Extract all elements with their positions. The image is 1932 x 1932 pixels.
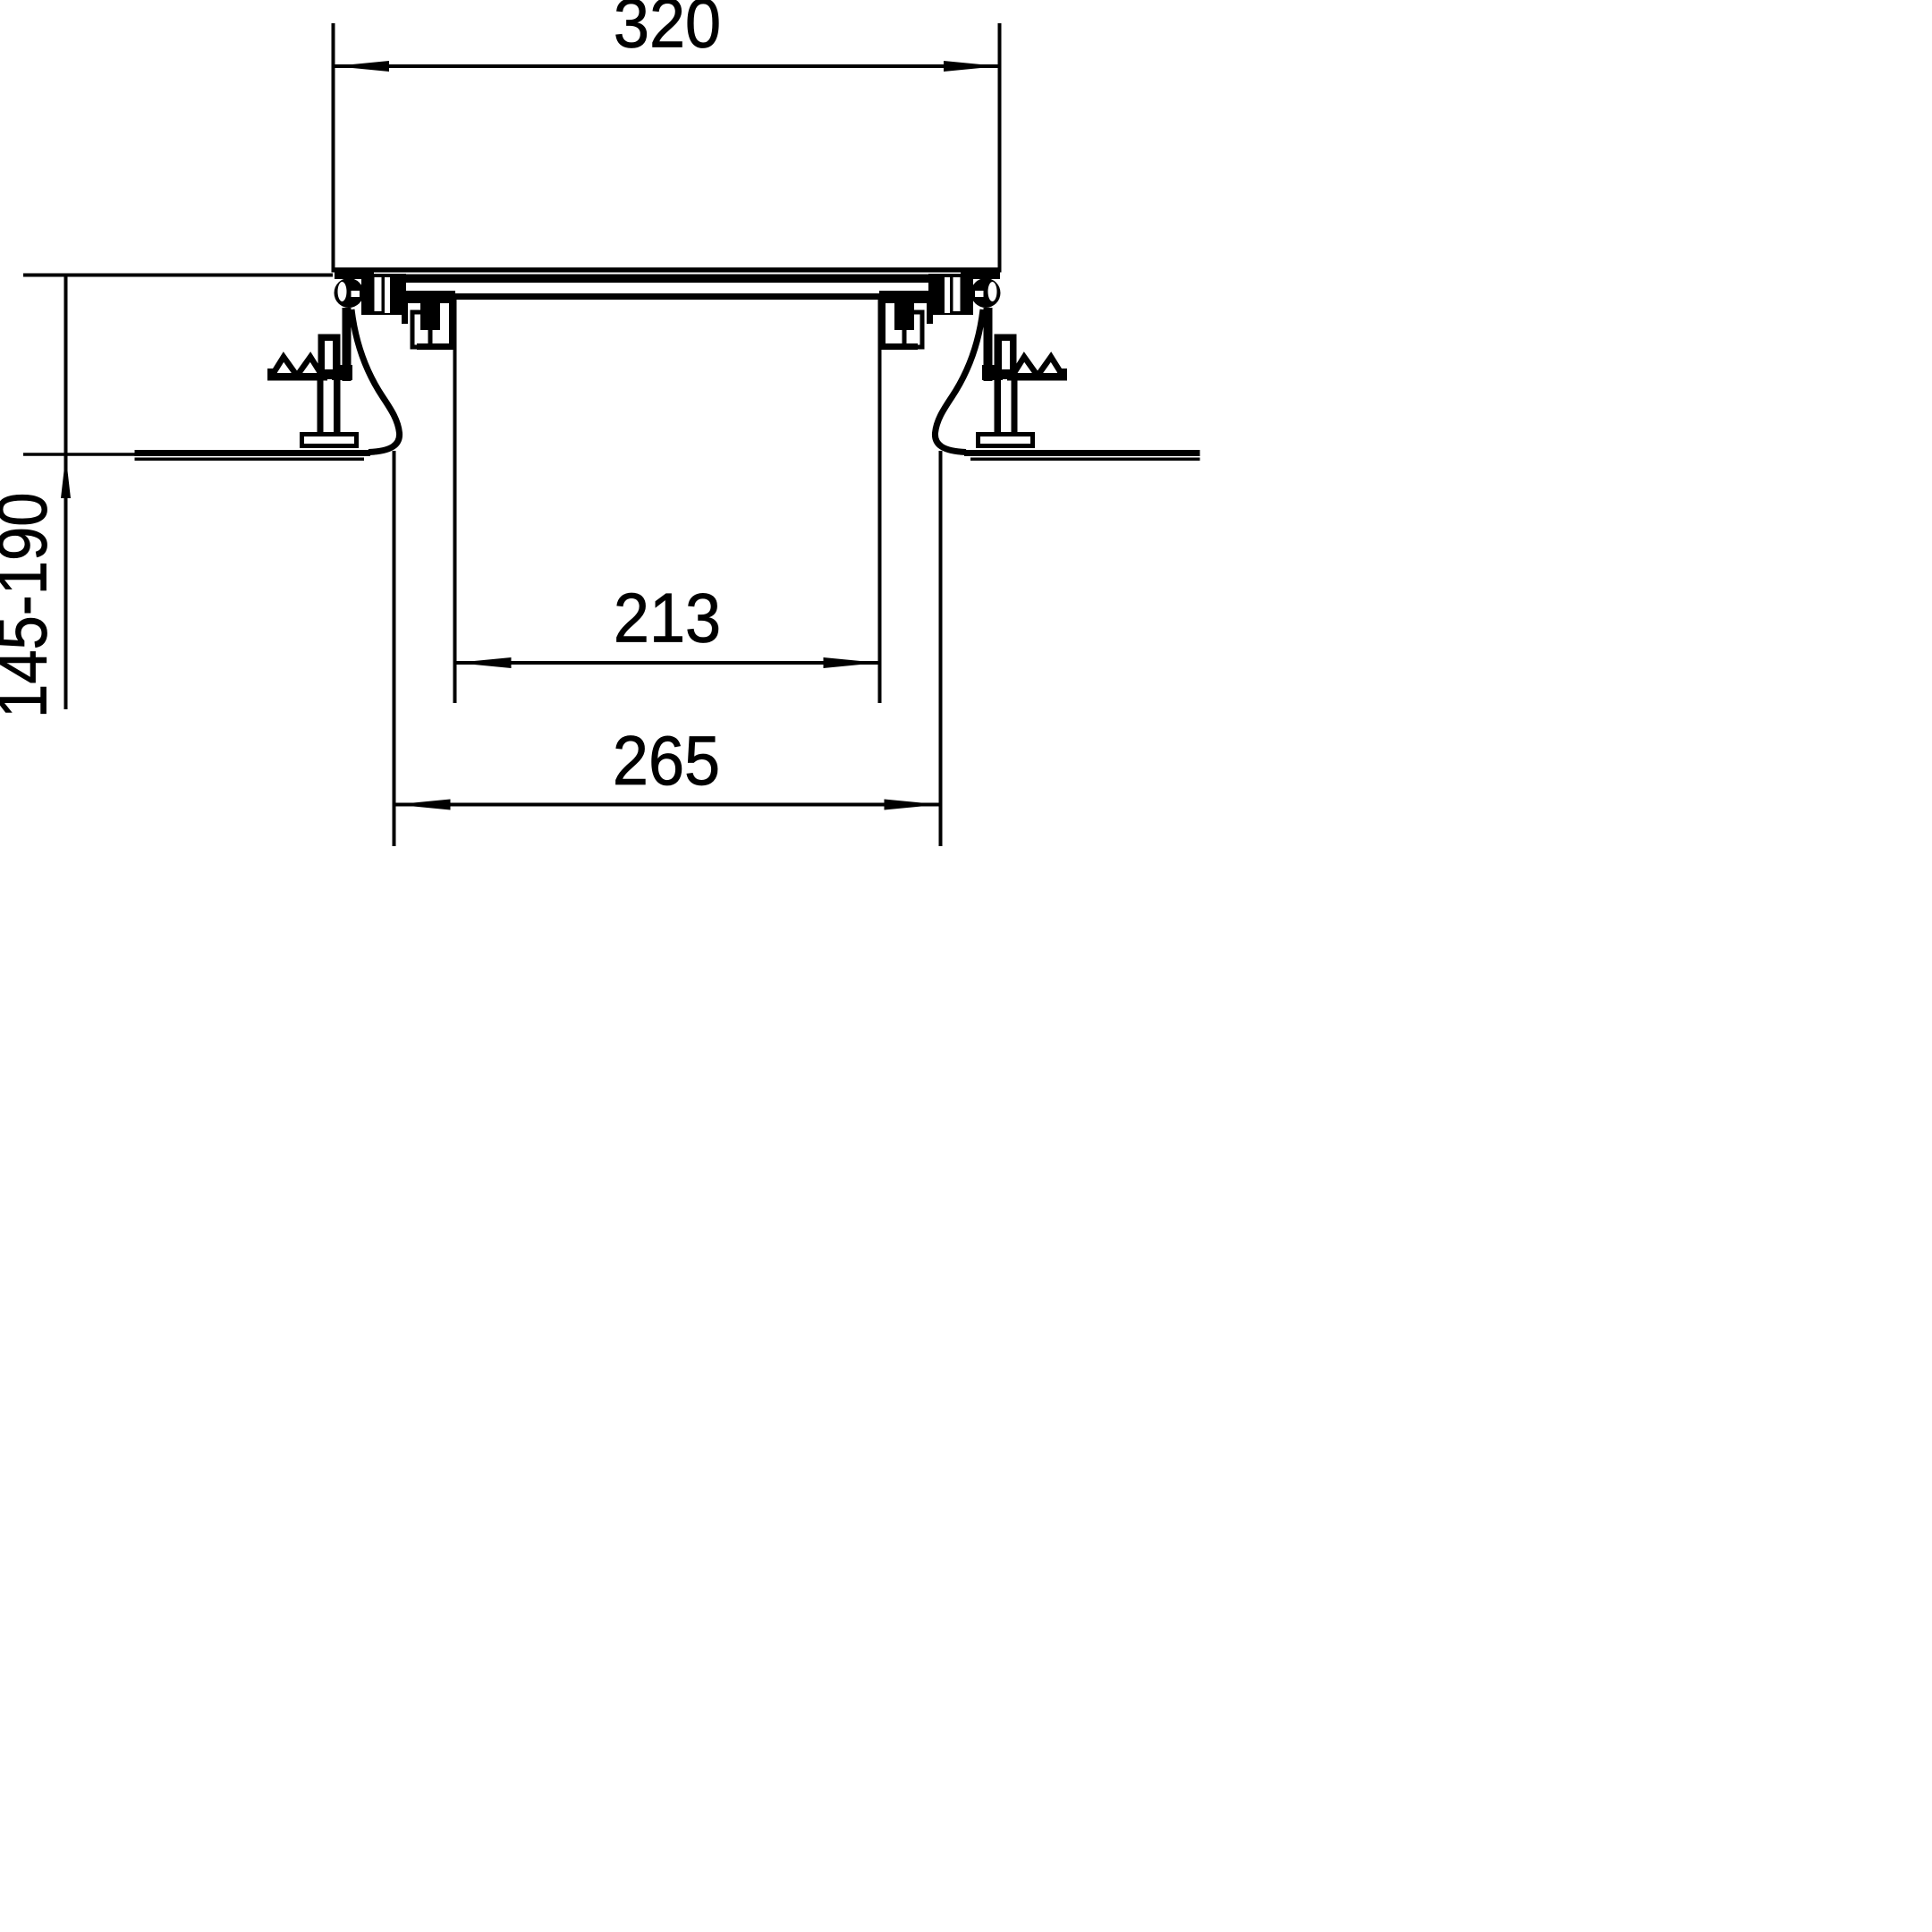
- svg-text:265: 265: [613, 722, 720, 800]
- svg-text:145-190: 145-190: [0, 493, 61, 718]
- svg-text:320: 320: [614, 0, 721, 62]
- svg-text:213: 213: [614, 579, 721, 657]
